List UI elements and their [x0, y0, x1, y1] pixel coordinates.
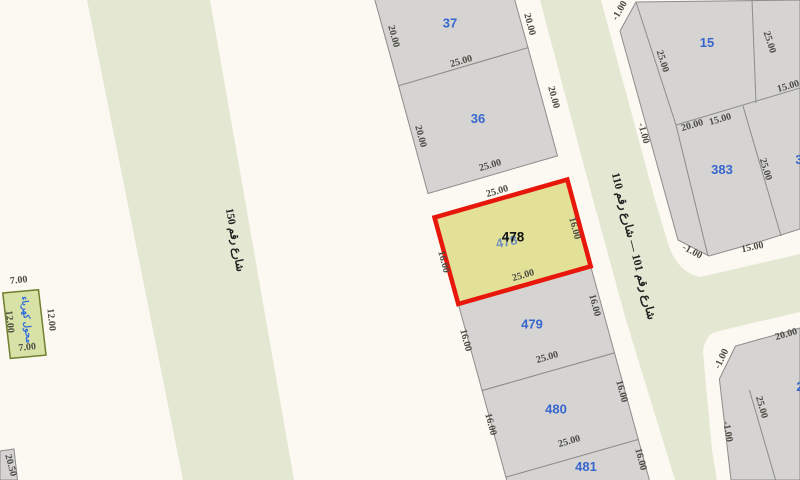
svg-text:37: 37: [443, 16, 457, 31]
svg-text:481: 481: [575, 459, 597, 474]
svg-text:36: 36: [471, 111, 485, 126]
svg-text:7.00: 7.00: [9, 274, 28, 287]
svg-text:7.00: 7.00: [18, 341, 37, 354]
svg-text:480: 480: [545, 402, 567, 417]
svg-text:15: 15: [700, 35, 714, 50]
svg-text:12.00: 12.00: [3, 310, 16, 334]
svg-text:478: 478: [502, 230, 525, 245]
svg-text:479: 479: [521, 317, 543, 332]
svg-text:2: 2: [796, 379, 800, 394]
svg-text:3: 3: [795, 152, 800, 167]
svg-text:12.00: 12.00: [44, 308, 57, 332]
svg-text:383: 383: [711, 162, 733, 177]
